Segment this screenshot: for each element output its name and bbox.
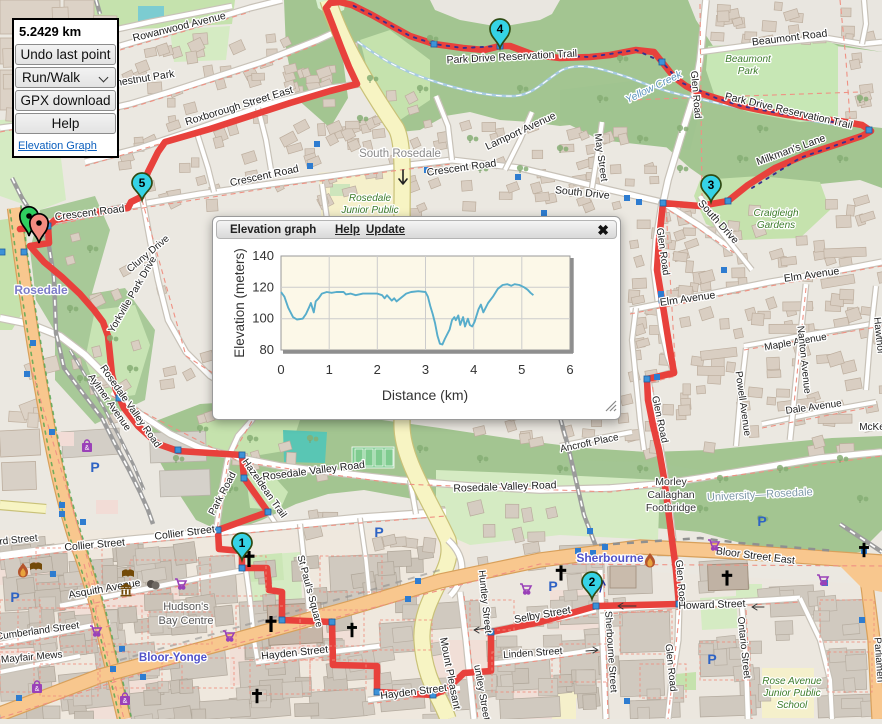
svg-text:P: P: [757, 513, 766, 529]
svg-text:Callaghan: Callaghan: [647, 489, 694, 501]
svg-text:120: 120: [252, 279, 274, 294]
svg-text:4: 4: [497, 22, 504, 36]
svg-text:&: &: [35, 686, 40, 693]
svg-text:P: P: [707, 651, 716, 667]
svg-text:&: &: [85, 445, 90, 452]
svg-text:Distance (km): Distance (km): [382, 387, 468, 403]
svg-text:Junior Public: Junior Public: [340, 205, 398, 216]
svg-text:South Rosedale: South Rosedale: [359, 148, 441, 160]
svg-text:Hudson's: Hudson's: [163, 601, 209, 613]
svg-text:Rosedale: Rosedale: [349, 193, 392, 204]
svg-text:140: 140: [252, 248, 274, 263]
svg-text:Footbridge: Footbridge: [646, 502, 696, 514]
svg-text:5: 5: [139, 176, 146, 190]
svg-text:5: 5: [518, 362, 525, 377]
svg-text:&: &: [123, 698, 128, 705]
svg-text:1: 1: [326, 362, 333, 377]
svg-text:McKe: McKe: [859, 422, 882, 433]
svg-text:0: 0: [277, 362, 284, 377]
svg-text:Howard Street: Howard Street: [678, 598, 746, 612]
svg-text:Elevation (meters): Elevation (meters): [232, 248, 247, 358]
svg-text:100: 100: [252, 311, 274, 326]
svg-text:P: P: [374, 524, 383, 540]
svg-text:Bloor-Yonge: Bloor-Yonge: [139, 652, 207, 664]
svg-text:Park: Park: [738, 66, 760, 77]
svg-text:Sherbourne: Sherbourne: [576, 551, 644, 565]
svg-text:Junior Public: Junior Public: [762, 688, 820, 699]
svg-text:3: 3: [708, 178, 715, 192]
svg-text:Beaumont: Beaumont: [725, 54, 772, 65]
svg-text:2: 2: [374, 362, 381, 377]
svg-text:Craigleigh: Craigleigh: [753, 208, 798, 219]
svg-text:80: 80: [260, 342, 274, 357]
svg-text:Gardens: Gardens: [757, 220, 795, 231]
svg-text:P: P: [10, 589, 19, 605]
svg-text:Bay Centre: Bay Centre: [158, 615, 213, 627]
svg-text:1: 1: [239, 536, 246, 550]
svg-text:Rose Avenue: Rose Avenue: [762, 676, 822, 687]
svg-text:School: School: [777, 700, 808, 711]
svg-text:P: P: [90, 459, 99, 475]
svg-text:6: 6: [566, 362, 573, 377]
svg-text:4: 4: [470, 362, 477, 377]
svg-text:Rosedale: Rosedale: [14, 283, 68, 297]
svg-text:P: P: [548, 578, 557, 594]
svg-text:Morley: Morley: [655, 476, 687, 488]
svg-text:3: 3: [422, 362, 429, 377]
svg-text:2: 2: [589, 575, 596, 589]
